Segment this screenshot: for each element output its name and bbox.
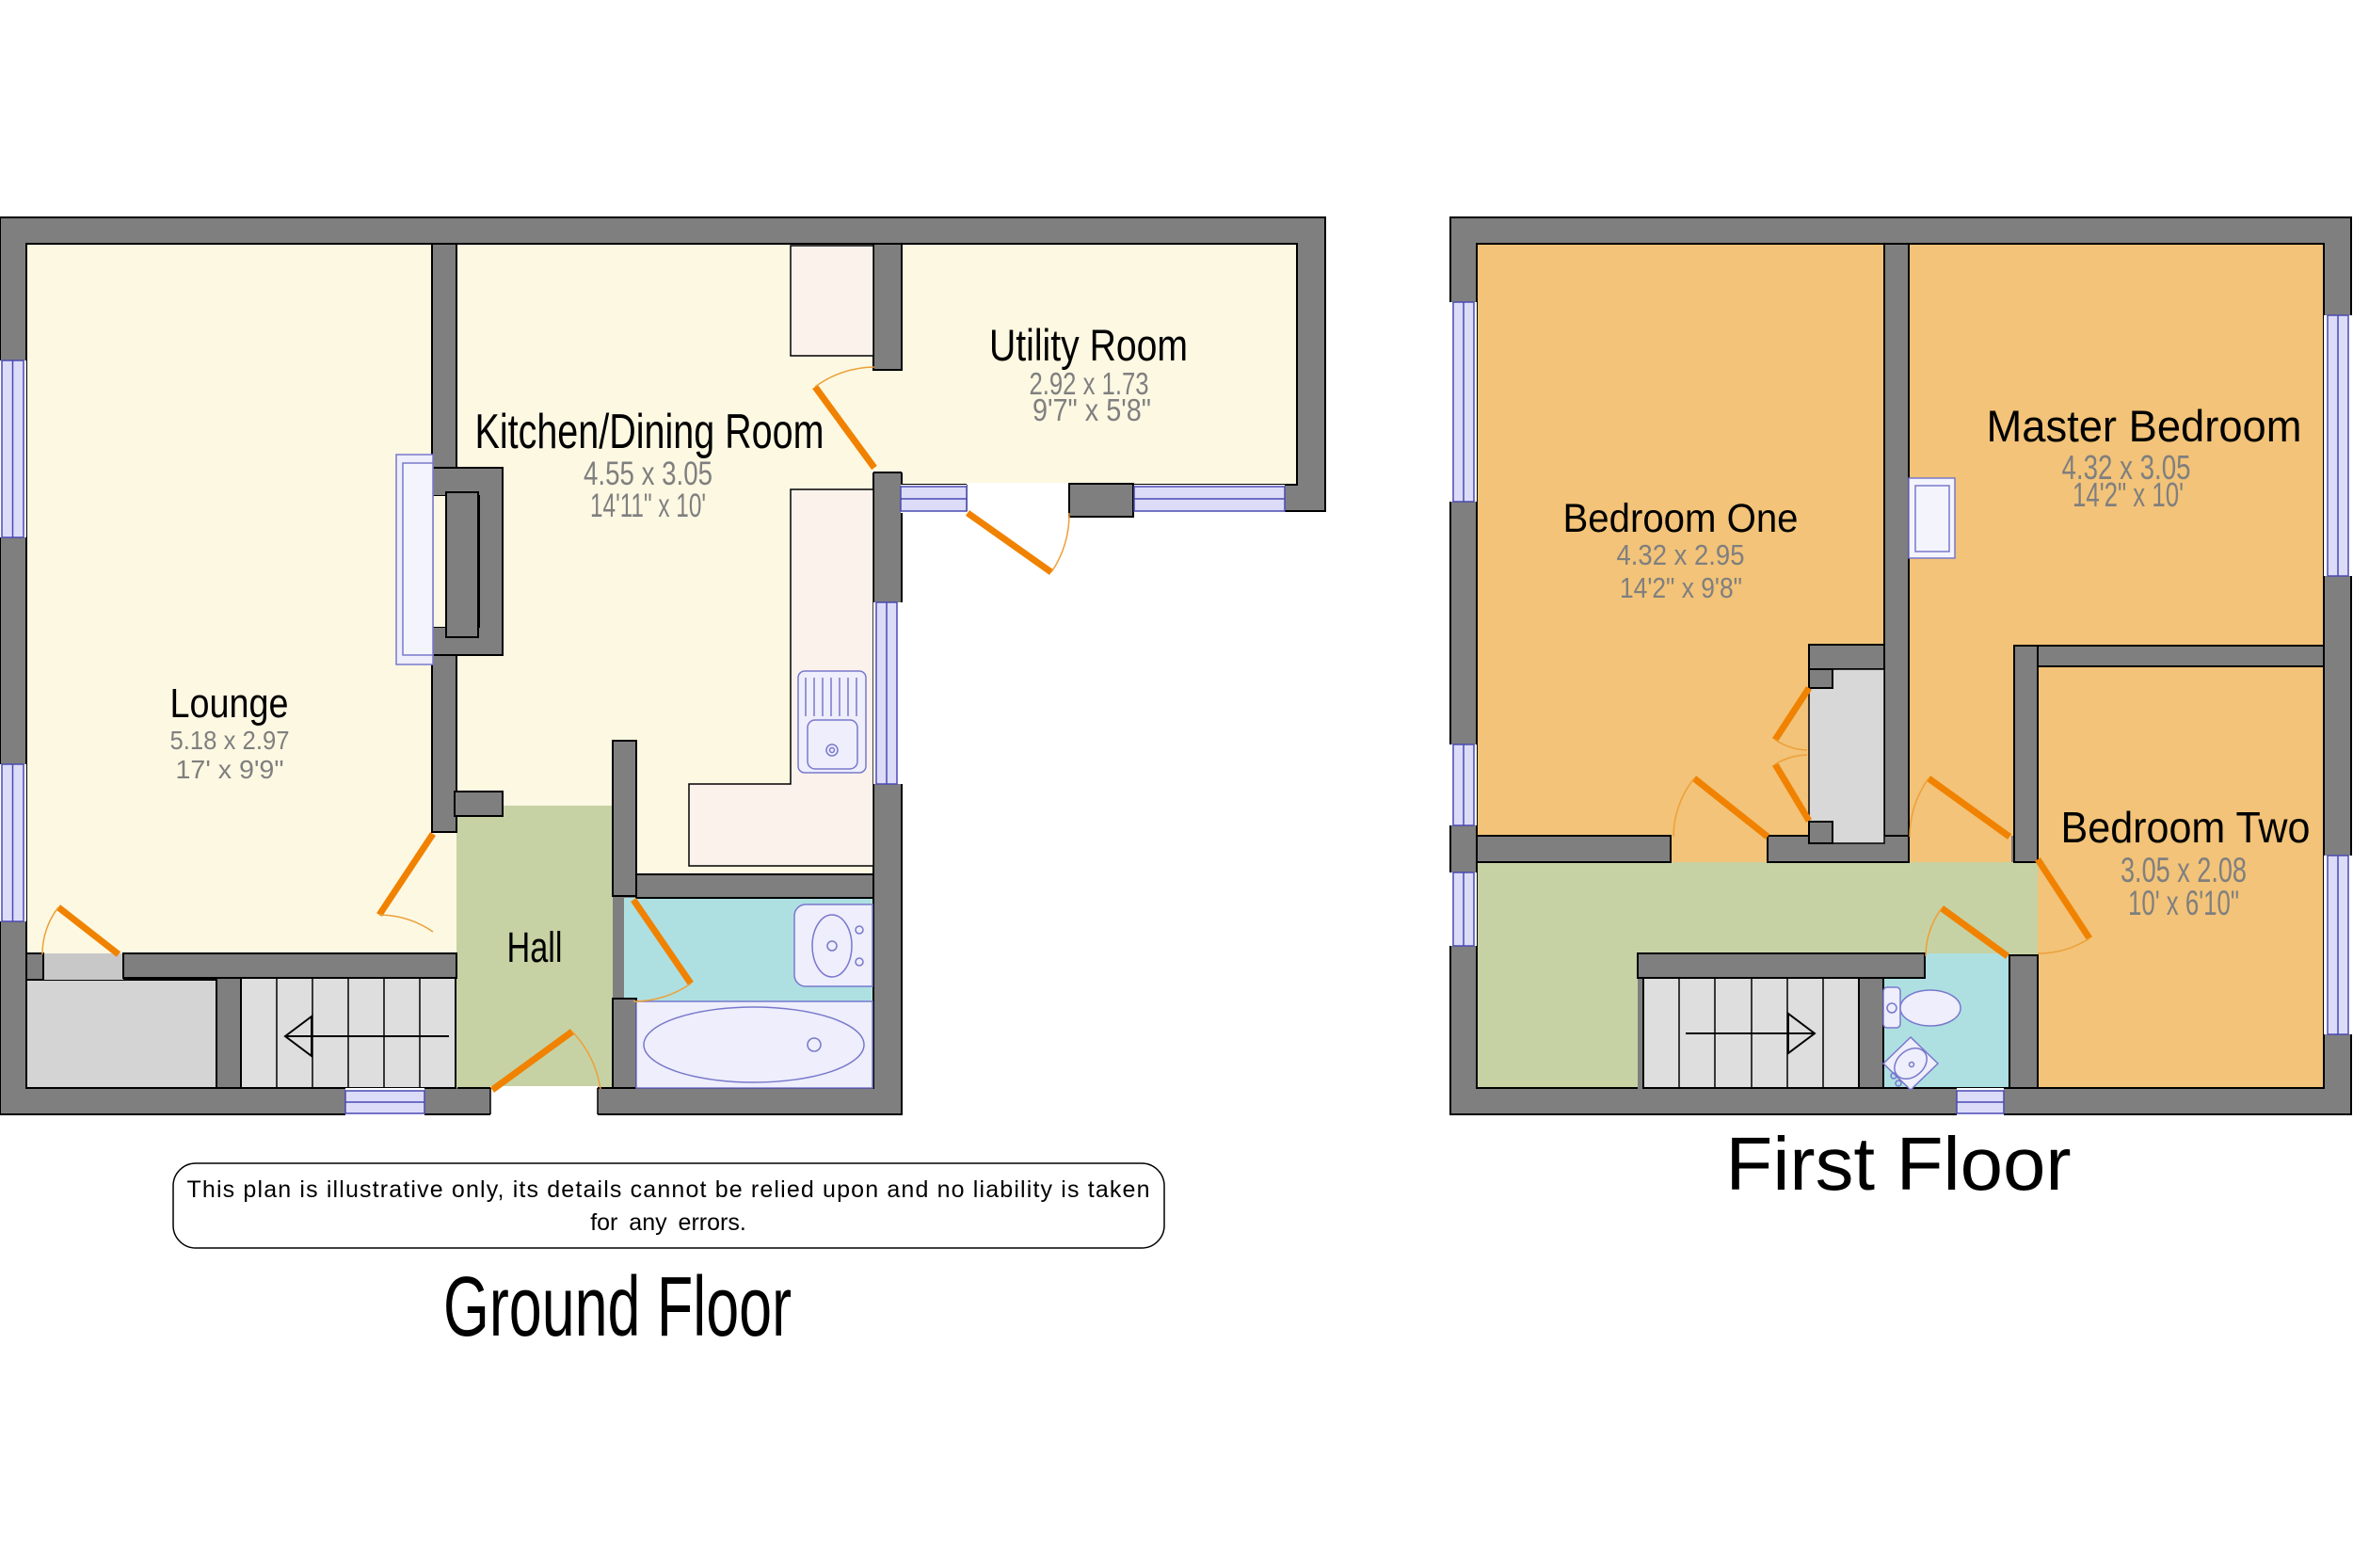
svg-text:Lounge: Lounge xyxy=(170,680,289,727)
svg-text:14'11" x 10': 14'11" x 10' xyxy=(590,488,706,524)
svg-text:5.18 x 2.97: 5.18 x 2.97 xyxy=(170,726,290,755)
svg-text:14'2" x 10': 14'2" x 10' xyxy=(2073,475,2184,514)
svg-text:Master Bedroom: Master Bedroom xyxy=(1987,401,2302,451)
svg-text:17' x 9'9": 17' x 9'9" xyxy=(176,755,284,784)
svg-text:10' x 6'10": 10' x 6'10" xyxy=(2128,884,2239,922)
svg-text:9'7" x 5'8": 9'7" x 5'8" xyxy=(1032,392,1151,427)
svg-text:for any errors.: for any errors. xyxy=(590,1209,746,1236)
svg-text:Kitchen/Dining Room: Kitchen/Dining Room xyxy=(475,405,824,459)
svg-text:This plan is illustrative only: This plan is illustrative only, its deta… xyxy=(187,1176,1150,1203)
svg-text:Ground Floor: Ground Floor xyxy=(443,1260,792,1354)
svg-text:Utility Room: Utility Room xyxy=(989,320,1188,370)
svg-text:14'2" x 9'8": 14'2" x 9'8" xyxy=(1620,571,1742,604)
svg-text:First Floor: First Floor xyxy=(1726,1122,2072,1206)
svg-text:4.32 x 2.95: 4.32 x 2.95 xyxy=(1617,538,1745,571)
svg-text:Bedroom Two: Bedroom Two xyxy=(2061,803,2311,852)
svg-text:Hall: Hall xyxy=(507,923,563,971)
svg-text:Bedroom One: Bedroom One xyxy=(1563,496,1799,541)
